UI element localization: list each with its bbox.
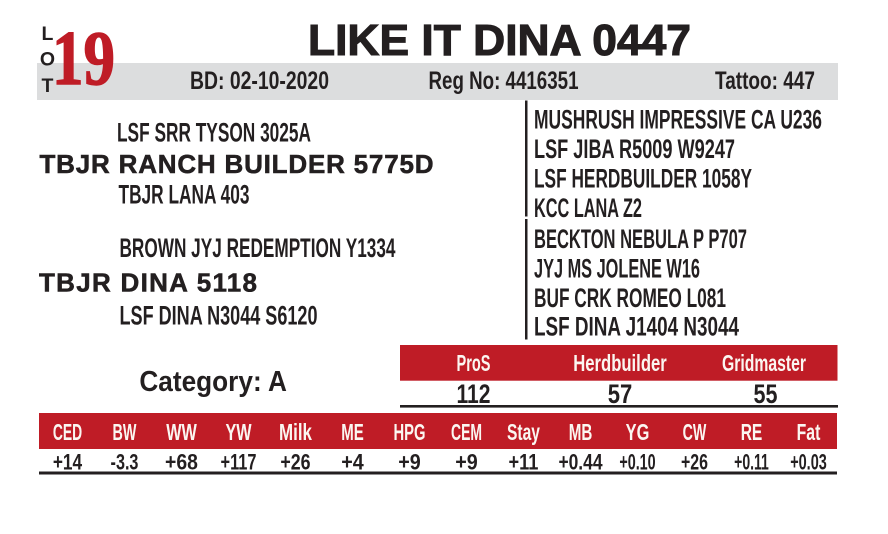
svg-text:BW: BW	[113, 419, 137, 445]
svg-text:+117: +117	[221, 450, 257, 475]
svg-text:LSF DINA N3044 S6120: LSF DINA N3044 S6120	[120, 300, 318, 330]
svg-text:Gridmaster: Gridmaster	[722, 350, 806, 376]
svg-text:RE: RE	[741, 419, 763, 445]
svg-text:+4: +4	[341, 450, 364, 475]
svg-text:YG: YG	[626, 419, 650, 445]
svg-text:+11: +11	[509, 450, 539, 475]
svg-text:TBJR RANCH BUILDER 5775D: TBJR RANCH BUILDER 5775D	[40, 149, 434, 179]
svg-text:TBJR LANA 403: TBJR LANA 403	[119, 179, 250, 209]
svg-text:MB: MB	[569, 419, 593, 445]
svg-text:55: 55	[754, 378, 778, 409]
svg-text:ME: ME	[341, 419, 364, 445]
svg-text:LIKE IT DINA 0447: LIKE IT DINA 0447	[308, 16, 691, 65]
svg-text:Reg No: 4416351: Reg No: 4416351	[429, 67, 579, 95]
svg-text:Stay: Stay	[507, 419, 540, 445]
svg-text:Milk: Milk	[279, 419, 313, 445]
svg-text:LSF DINA J1404 N3044: LSF DINA J1404 N3044	[534, 312, 739, 342]
svg-text:ProS: ProS	[457, 350, 491, 376]
svg-text:CED: CED	[53, 419, 82, 445]
svg-text:+9: +9	[398, 450, 421, 475]
svg-text:+26: +26	[681, 450, 708, 475]
svg-text:BROWN JYJ REDEMPTION Y1334: BROWN JYJ REDEMPTION Y1334	[120, 233, 396, 263]
svg-text:LSF SRR TYSON 3025A: LSF SRR TYSON 3025A	[117, 117, 311, 147]
svg-text:BD: 02-10-2020: BD: 02-10-2020	[190, 67, 329, 95]
svg-text:+0.10: +0.10	[619, 450, 655, 475]
svg-text:+68: +68	[165, 450, 198, 475]
svg-text:LSF HERDBUILDER 1058Y: LSF HERDBUILDER 1058Y	[534, 164, 752, 194]
svg-text:CW: CW	[683, 419, 707, 445]
svg-text:KCC LANA Z2: KCC LANA Z2	[534, 193, 642, 223]
svg-text:CEM: CEM	[451, 419, 482, 445]
svg-text:LSF JIBA R5009 W9247: LSF JIBA R5009 W9247	[534, 134, 735, 164]
svg-text:Category: A: Category: A	[139, 366, 287, 398]
svg-text:BECKTON NEBULA P P707: BECKTON NEBULA P P707	[534, 224, 747, 254]
svg-text:+0.44: +0.44	[558, 450, 603, 475]
svg-text:19: 19	[52, 15, 115, 101]
svg-text:HPG: HPG	[394, 419, 426, 445]
svg-text:-3.3: -3.3	[111, 450, 139, 475]
svg-text:Herdbuilder: Herdbuilder	[573, 350, 667, 376]
svg-text:57: 57	[608, 378, 633, 409]
svg-text:+9: +9	[455, 450, 478, 475]
svg-text:YW: YW	[225, 419, 252, 445]
svg-text:Fat: Fat	[797, 419, 821, 445]
svg-text:MUSHRUSH IMPRESSIVE CA U236: MUSHRUSH IMPRESSIVE CA U236	[534, 105, 822, 135]
svg-text:+14: +14	[53, 450, 83, 475]
svg-text:+0.03: +0.03	[790, 450, 827, 475]
svg-text:WW: WW	[166, 419, 197, 445]
svg-text:112: 112	[457, 378, 491, 409]
svg-text:JYJ MS JOLENE W16: JYJ MS JOLENE W16	[534, 253, 700, 283]
svg-text:Tattoo: 447: Tattoo: 447	[715, 67, 815, 95]
svg-text:+26: +26	[280, 450, 310, 475]
svg-text:BUF CRK ROMEO L081: BUF CRK ROMEO L081	[534, 283, 726, 313]
svg-text:+0.11: +0.11	[734, 450, 769, 475]
